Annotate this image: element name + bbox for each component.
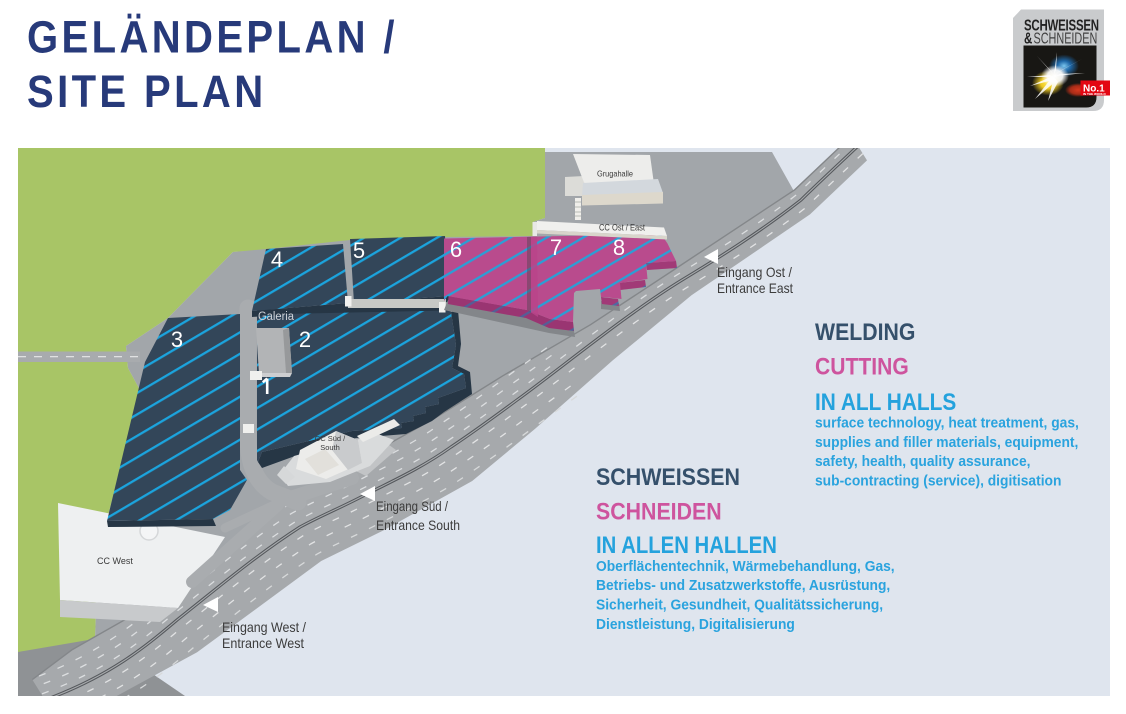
svg-text:South: South [320,443,340,452]
svg-text:Grugahalle: Grugahalle [597,169,633,179]
svg-text:CC Ost / East: CC Ost / East [599,223,645,233]
svg-text:IN ALL HALLS: IN ALL HALLS [815,387,956,415]
svg-text:supplies and filler materials,: supplies and filler materials, equipment… [815,434,1078,451]
svg-text:2: 2 [299,327,311,352]
svg-text:GELÄNDEPLAN /: GELÄNDEPLAN / [27,12,398,63]
svg-text:&: & [1024,30,1032,47]
svg-text:CC Süd /: CC Süd / [315,434,346,443]
svg-text:6: 6 [450,237,462,262]
svg-text:sub-contracting (service), dig: sub-contracting (service), digitisation [815,473,1061,490]
svg-text:SCHWEISSEN: SCHWEISSEN [596,463,740,491]
svg-text:8: 8 [613,235,625,260]
svg-text:WELDING: WELDING [815,318,915,346]
svg-text:CC West: CC West [97,556,133,566]
svg-text:IN THE WORLD: IN THE WORLD [1083,92,1106,96]
svg-text:4: 4 [271,247,283,272]
svg-text:surface technology, heat treat: surface technology, heat treatment, gas, [815,415,1079,432]
svg-text:SCHNEIDEN: SCHNEIDEN [1034,29,1098,46]
svg-text:CUTTING: CUTTING [815,352,909,380]
svg-text:Oberflächentechnik, Wärmebehan: Oberflächentechnik, Wärmebehandlung, Gas… [596,558,895,575]
svg-text:Entrance South: Entrance South [376,518,460,533]
svg-text:Entrance East: Entrance East [717,281,793,296]
svg-text:safety, health, quality assura: safety, health, quality assurance, [815,454,1031,471]
svg-text:Betriebs- und Zusatzwerkstoffe: Betriebs- und Zusatzwerkstoffe, Ausrüstu… [596,578,890,595]
svg-text:3: 3 [171,327,183,352]
svg-text:Eingang Ost /: Eingang Ost / [717,265,792,280]
svg-text:7: 7 [550,235,562,260]
svg-text:IN ALLEN HALLEN: IN ALLEN HALLEN [596,531,777,558]
svg-text:Galeria: Galeria [258,311,295,323]
svg-text:SCHNEIDEN: SCHNEIDEN [596,497,722,525]
svg-text:Sicherheit, Gesundheit, Qualit: Sicherheit, Gesundheit, Qualitätssicheru… [596,597,883,614]
svg-text:5: 5 [353,238,365,263]
svg-text:Dienstleistung, Digitalisierun: Dienstleistung, Digitalisierung [596,616,795,633]
svg-text:SITE PLAN: SITE PLAN [27,67,267,118]
svg-text:Eingang Süd /: Eingang Süd / [376,499,448,514]
svg-text:Eingang West /: Eingang West / [222,620,306,635]
svg-text:Entrance West: Entrance West [222,636,304,651]
